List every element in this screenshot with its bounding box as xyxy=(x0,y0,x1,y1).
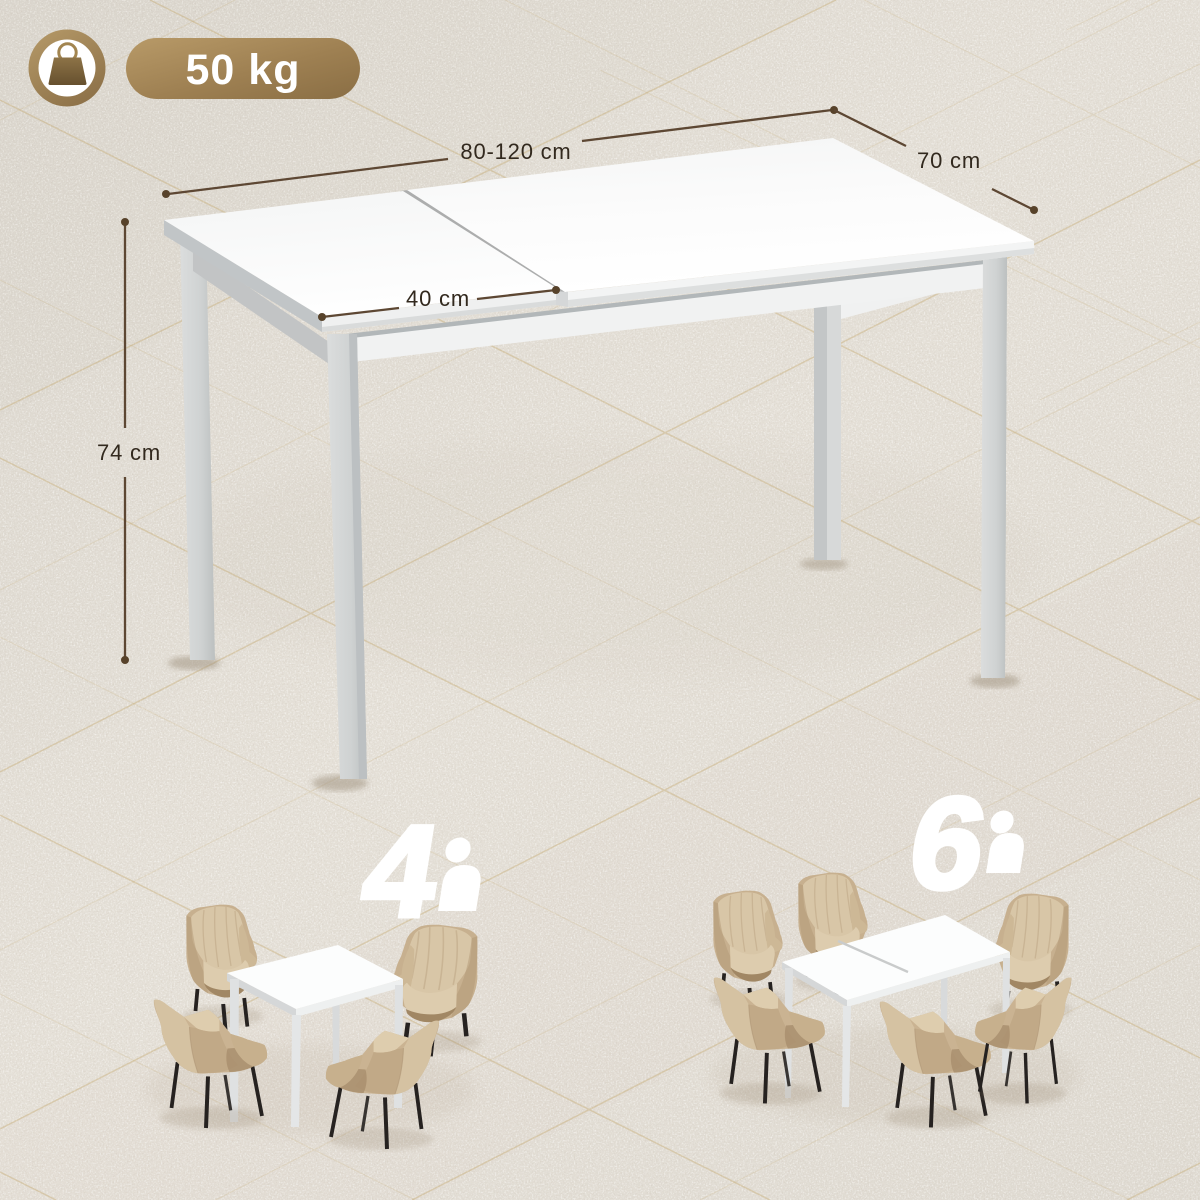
svg-text:70 cm: 70 cm xyxy=(917,148,981,173)
svg-text:74 cm: 74 cm xyxy=(97,440,161,465)
svg-text:40 cm: 40 cm xyxy=(406,286,470,311)
svg-text:50 kg: 50 kg xyxy=(186,46,301,94)
svg-text:80-120 cm: 80-120 cm xyxy=(460,139,571,164)
